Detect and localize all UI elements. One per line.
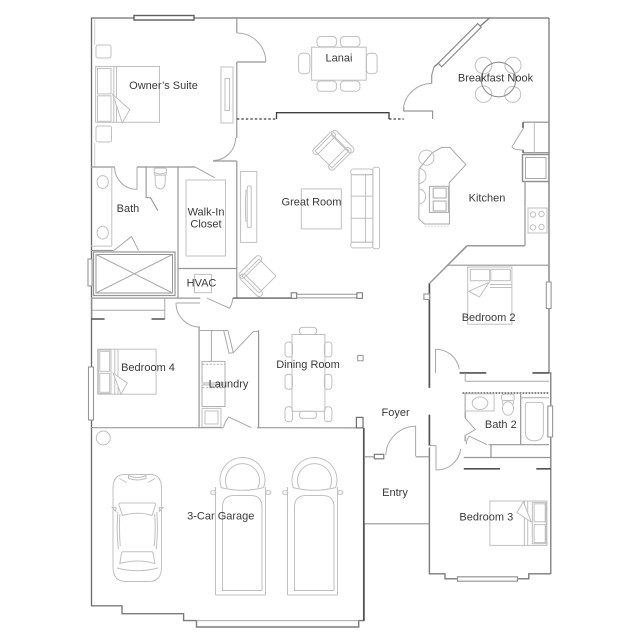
svg-text:Owner’s Suite: Owner’s Suite — [129, 80, 198, 92]
svg-text:Dining Room: Dining Room — [276, 359, 340, 371]
svg-text:Walk-In: Walk-In — [188, 207, 225, 219]
svg-text:Foyer: Foyer — [382, 407, 410, 419]
svg-text:Entry: Entry — [382, 487, 408, 499]
svg-text:Breakfast Nook: Breakfast Nook — [458, 73, 534, 85]
svg-text:Bedroom 3: Bedroom 3 — [459, 512, 513, 524]
svg-text:Bath 2: Bath 2 — [485, 419, 517, 431]
svg-text:3-Car Garage: 3-Car Garage — [187, 511, 254, 523]
svg-text:Bedroom 4: Bedroom 4 — [121, 362, 175, 374]
svg-text:HVAC: HVAC — [187, 278, 217, 290]
svg-text:Bath: Bath — [117, 203, 140, 215]
svg-text:Bedroom 2: Bedroom 2 — [462, 312, 516, 324]
svg-text:Great Room: Great Room — [282, 197, 342, 209]
svg-text:Laundry: Laundry — [209, 379, 249, 391]
svg-text:Closet: Closet — [190, 219, 221, 231]
svg-text:Lanai: Lanai — [326, 53, 353, 65]
svg-text:Kitchen: Kitchen — [469, 193, 506, 205]
